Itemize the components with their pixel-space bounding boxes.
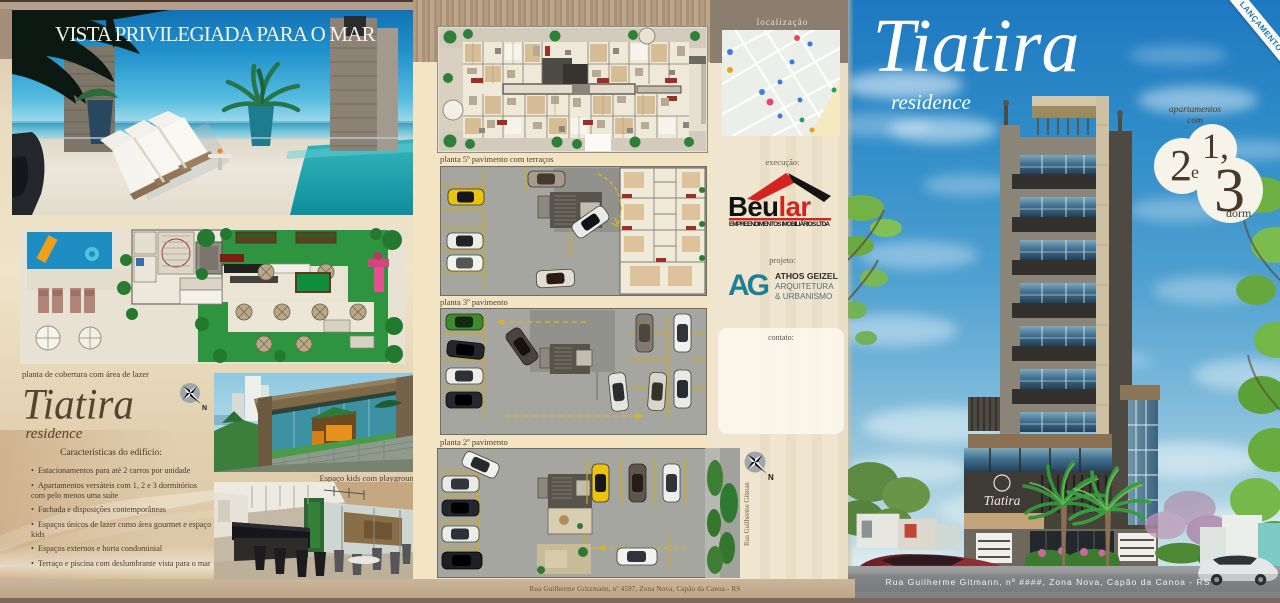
svg-text:ARQUITETURA: ARQUITETURA — [775, 282, 834, 291]
svg-text:AG: AG — [728, 269, 769, 302]
svg-text:Rua Guilherme Gitmann: Rua Guilherme Gitmann — [744, 482, 751, 546]
svg-text:2: 2 — [1170, 141, 1192, 190]
svg-text:Beular: Beular — [728, 191, 811, 222]
svg-text:ATHOS GEIZEL: ATHOS GEIZEL — [775, 271, 838, 281]
svg-text:EMPREENDIMENTOS IMOBILIÁRIOS L: EMPREENDIMENTOS IMOBILIÁRIOS LTDA — [729, 221, 831, 228]
svg-text:N: N — [202, 405, 207, 412]
svg-text:dorm: dorm — [1226, 206, 1252, 220]
svg-text:N: N — [768, 473, 774, 482]
svg-text:e: e — [1191, 162, 1199, 182]
svg-text:VISTA PRIVILEGIADA PARA O MAR: VISTA PRIVILEGIADA PARA O MAR — [55, 22, 376, 46]
svg-text:Tiatira: Tiatira — [984, 493, 1021, 508]
svg-text:& URBANISMO: & URBANISMO — [775, 292, 832, 301]
